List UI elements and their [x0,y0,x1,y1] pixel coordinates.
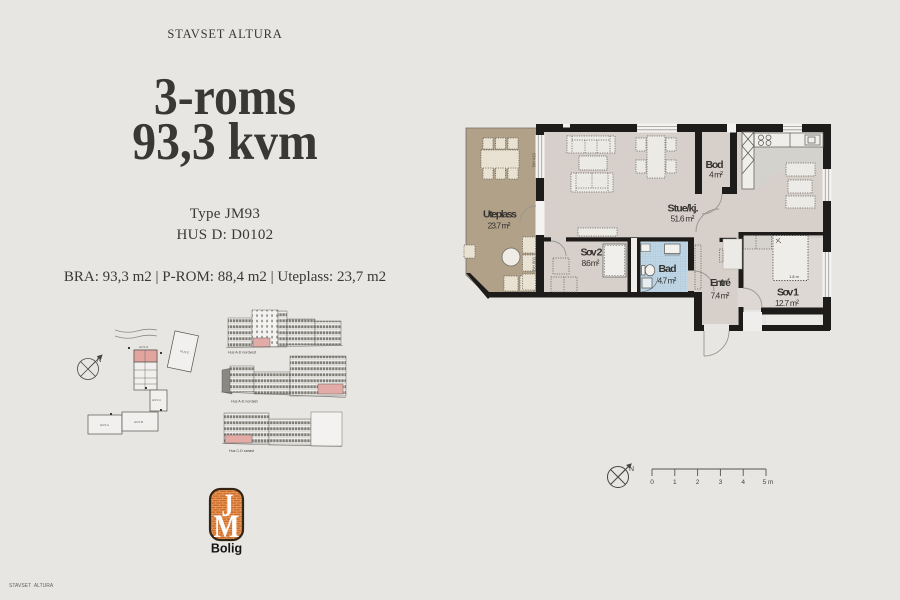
svg-text:N: N [97,358,101,364]
svg-text:HUS C: HUS C [152,398,162,402]
svg-text:Uteplass: Uteplass [483,209,517,221]
svg-text:M: M [214,509,240,545]
svg-text:HUS B: HUS B [134,420,143,424]
svg-text:1.8 m: 1.8 m [789,275,799,279]
svg-text:4.7 m²: 4.7 m² [658,276,677,286]
svg-text:Entré: Entré [710,277,731,289]
svg-text:HUS A: HUS A [100,423,109,427]
svg-text:Hus A-D nordvest: Hus A-D nordvest [228,351,256,355]
svg-text:5 m: 5 m [763,479,774,486]
svg-text:8.6 m²: 8.6 m² [582,258,600,268]
svg-text:HUS D: HUS D [139,345,149,349]
svg-text:4: 4 [741,479,745,486]
svg-text:0: 0 [650,479,654,486]
svg-text:2: 2 [696,479,700,486]
svg-text:Hus A-D nordøst: Hus A-D nordøst [231,400,258,404]
svg-text:7.4 m²: 7.4 m² [711,291,730,301]
svg-text:Sov 2: Sov 2 [581,247,603,259]
svg-text:1: 1 [673,479,677,486]
svg-text:3: 3 [719,479,723,486]
svg-text:N: N [629,466,634,473]
svg-text:4 m²: 4 m² [709,170,723,180]
svg-text:BH 410: BH 410 [532,152,537,167]
svg-text:23.7 m²: 23.7 m² [488,221,511,231]
svg-text:51.6 m²: 51.6 m² [671,214,695,224]
svg-text:12.7 m²: 12.7 m² [775,298,799,308]
svg-text:BH 800: BH 800 [532,256,537,271]
svg-text:Bad: Bad [659,263,677,275]
svg-text:Bolig: Bolig [211,542,242,556]
svg-text:Sov 1: Sov 1 [777,287,799,299]
svg-text:Hus C-D sørøst: Hus C-D sørøst [229,449,254,453]
